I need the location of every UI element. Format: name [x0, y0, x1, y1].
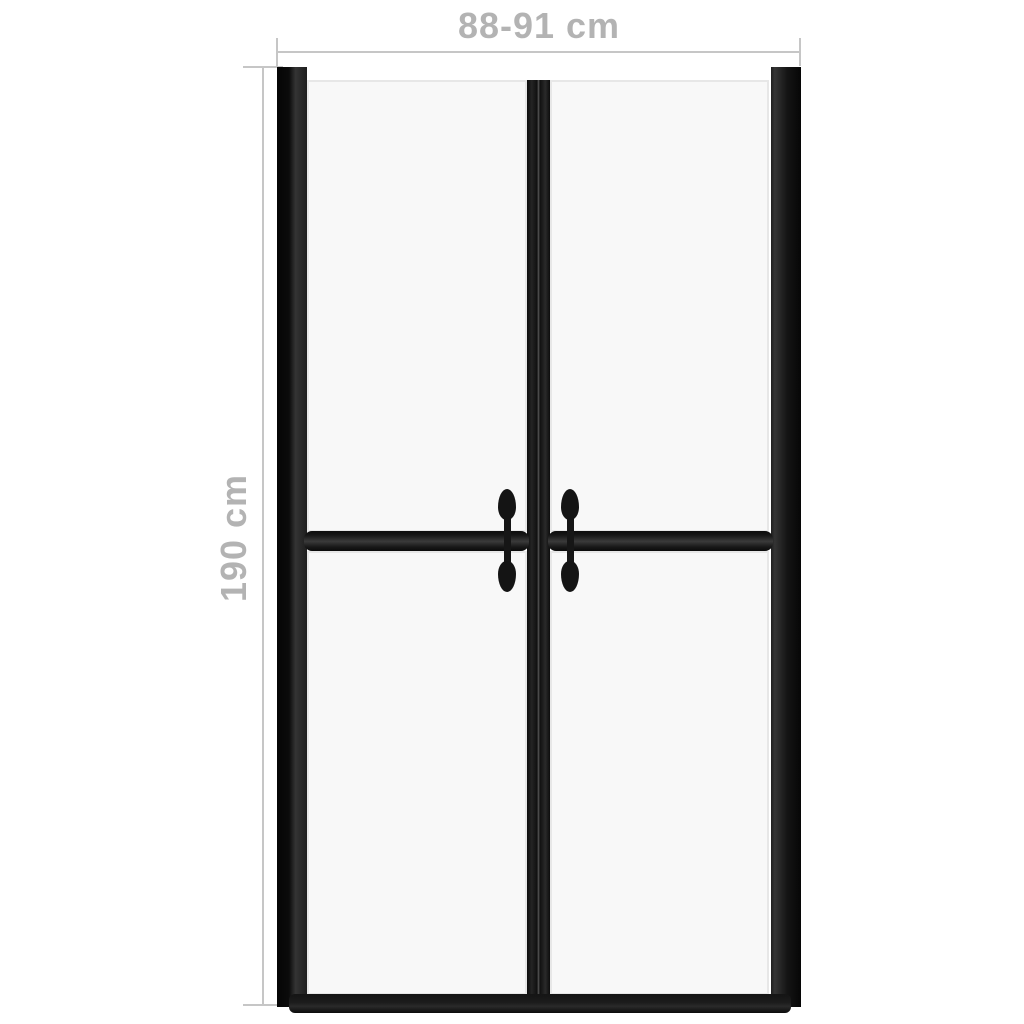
handle-knob-top-icon: [561, 489, 579, 520]
width-dimension-label: 88-91 cm: [277, 8, 801, 44]
mid-rail-left-door: [304, 531, 529, 551]
glass-panel-upper-left: [307, 80, 527, 532]
glass-panel-lower-left: [307, 551, 527, 995]
product-dimension-diagram: 88-91 cm 190 cm: [0, 0, 1024, 1024]
width-dimension-tick-left: [276, 38, 278, 66]
glass-panel-upper-right: [550, 80, 769, 532]
door-handle-left: [498, 489, 516, 592]
handle-knob-bottom-icon: [498, 561, 516, 592]
handle-knob-bottom-icon: [561, 561, 579, 592]
center-door-stiles: [527, 80, 550, 997]
height-dimension-label: 190 cm: [216, 474, 252, 602]
width-dimension-tick-right: [799, 38, 801, 66]
mid-rail-right-door: [548, 531, 773, 551]
door-handle-right: [561, 489, 579, 592]
frame-post-right: [771, 67, 801, 1007]
height-dimension-line: [262, 67, 264, 1006]
glass-panel-lower-right: [550, 551, 769, 995]
frame-post-left: [277, 67, 307, 1007]
width-dimension-line: [277, 51, 801, 53]
bottom-rail: [289, 994, 791, 1013]
handle-knob-top-icon: [498, 489, 516, 520]
